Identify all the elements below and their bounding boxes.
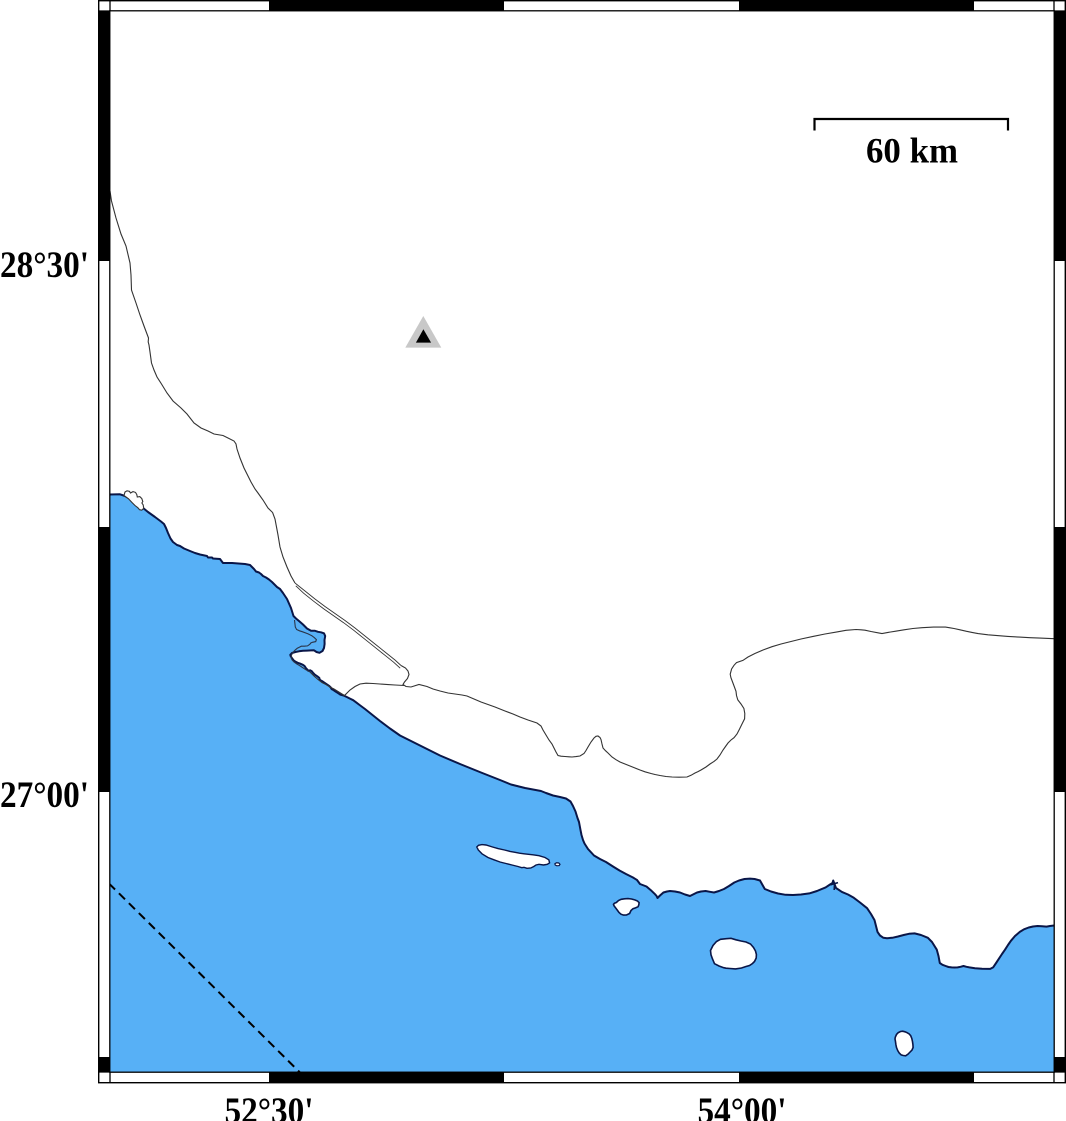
svg-text:60 km: 60 km	[866, 131, 958, 171]
svg-text:27°00': 27°00'	[0, 775, 89, 816]
svg-text:54°00': 54°00'	[698, 1091, 787, 1121]
svg-text:52°30': 52°30'	[225, 1091, 314, 1121]
svg-text:28°30': 28°30'	[0, 245, 89, 286]
